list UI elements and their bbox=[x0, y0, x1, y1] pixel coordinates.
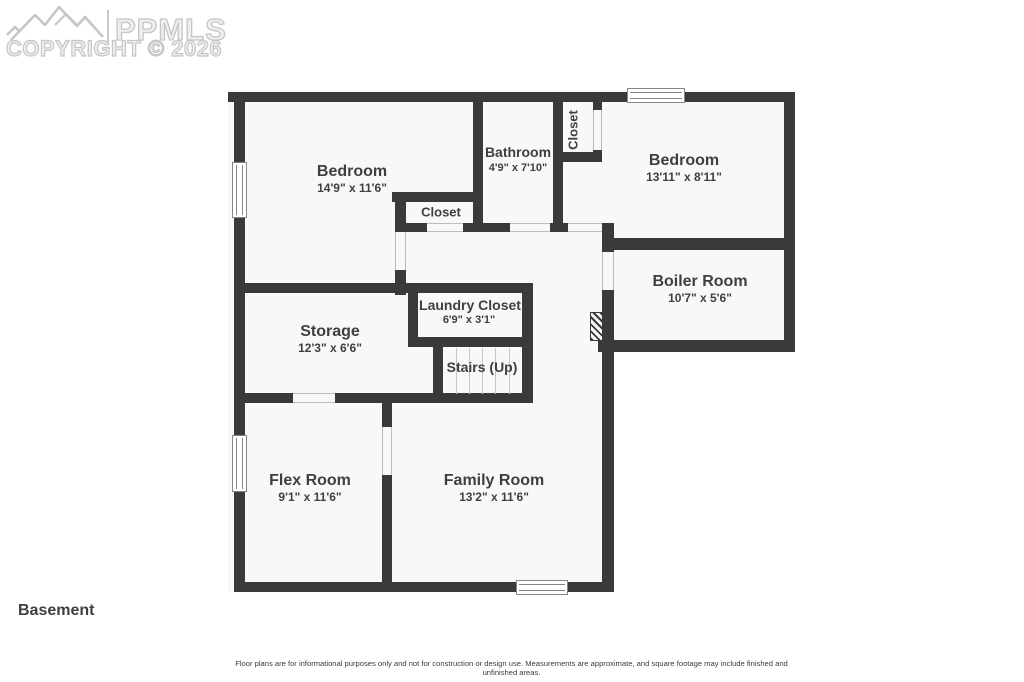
wall-boiler-bottom bbox=[598, 340, 795, 352]
room-label-bedroom1: Bedroom bbox=[317, 163, 387, 181]
room-label-family: Family Room bbox=[444, 472, 544, 490]
wall-flex-top bbox=[234, 393, 533, 403]
window-marker-flex bbox=[232, 435, 247, 492]
room-label-boiler: Boiler Room bbox=[652, 273, 747, 291]
room-label-bathroom: Bathroom bbox=[485, 144, 551, 160]
floor-name-label: Basement bbox=[18, 602, 94, 620]
wall-closet2-bottom bbox=[553, 152, 602, 162]
door-hatch-marker bbox=[590, 312, 603, 341]
room-label-closet-bedroom2: Closet bbox=[566, 110, 581, 150]
room-label-stairs: Stairs (Up) bbox=[447, 359, 518, 375]
ppmls-watermark: PPMLS COPYRIGHT © 2026 bbox=[4, 2, 264, 72]
wall-bed2-bottom bbox=[602, 238, 795, 250]
window-marker-family bbox=[516, 580, 568, 595]
floor-plan: Bedroom 14'9" x 11'6" Bathroom 4'9" x 7'… bbox=[228, 90, 795, 592]
wall-bath-east bbox=[553, 92, 563, 232]
door-opening-hall-closet bbox=[427, 223, 463, 232]
door-opening-bathroom bbox=[510, 223, 550, 232]
wall-laundry-bottom bbox=[408, 337, 533, 347]
door-opening-closet2 bbox=[593, 110, 602, 150]
room-label-bedroom2: Bedroom bbox=[649, 152, 719, 170]
room-label-hall-closet: Closet bbox=[421, 205, 461, 220]
door-opening-storage bbox=[293, 393, 335, 403]
door-opening-bedroom2 bbox=[568, 223, 602, 232]
room-dims-storage: 12'3" x 6'6" bbox=[298, 341, 362, 355]
window-marker-bedroom1 bbox=[232, 162, 247, 218]
wall-bed1-bath bbox=[473, 92, 483, 232]
door-opening-flex-family bbox=[382, 427, 392, 475]
wall-storage-laundry-top bbox=[234, 283, 532, 293]
wall-outer-top bbox=[228, 92, 795, 102]
room-label-storage: Storage bbox=[300, 323, 360, 341]
room-label-flex: Flex Room bbox=[269, 472, 351, 490]
disclaimer-text: Floor plans are for informational purpos… bbox=[228, 659, 795, 677]
room-dims-bedroom1: 14'9" x 11'6" bbox=[317, 181, 387, 195]
room-dims-bathroom: 4'9" x 7'10" bbox=[489, 162, 547, 174]
room-dims-boiler: 10'7" x 5'6" bbox=[668, 291, 732, 305]
room-dims-bedroom2: 13'11" x 8'11" bbox=[646, 170, 722, 184]
room-label-laundry: Laundry Closet bbox=[419, 297, 521, 313]
door-opening-boiler bbox=[602, 252, 614, 290]
copyright-text: COPYRIGHT © 2026 bbox=[6, 36, 222, 62]
room-dims-family: 13'2" x 11'6" bbox=[459, 490, 529, 504]
room-dims-flex: 9'1" x 11'6" bbox=[278, 490, 341, 504]
wall-outer-right bbox=[784, 92, 795, 352]
plan-void bbox=[614, 352, 795, 592]
door-opening-bedroom1 bbox=[395, 232, 406, 270]
room-dims-laundry: 6'9" x 3'1" bbox=[443, 314, 495, 326]
window-marker-bedroom2 bbox=[627, 88, 685, 103]
